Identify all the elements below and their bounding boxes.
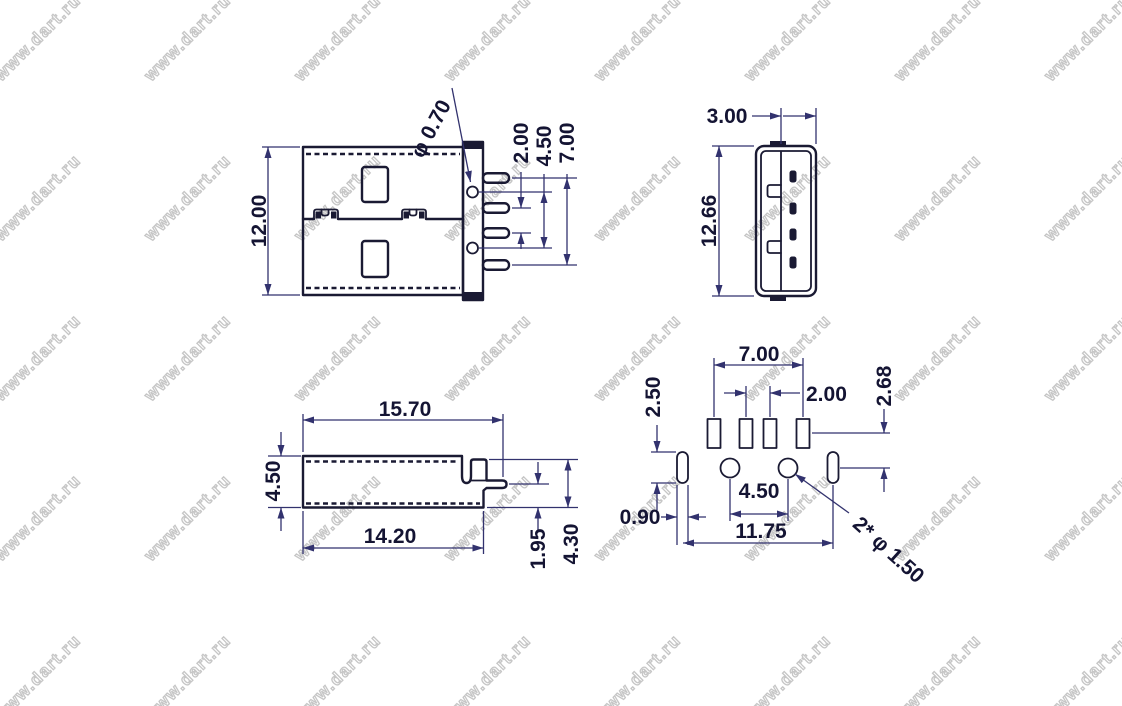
flange-hole-2: [467, 243, 478, 254]
smd-pad-2: [740, 419, 753, 448]
dimension-label-mount-height: 4.30: [560, 524, 583, 565]
connector-body-outline: [303, 147, 463, 295]
flange-cap-top: [464, 142, 482, 149]
smd-pad-4: [797, 419, 810, 448]
dimension-label-overall-length: 15.70: [379, 398, 432, 421]
contact-pin-3: [483, 228, 509, 238]
footprint-view-drawing: 7.00 2.00 2.68 2.50 4.50: [620, 343, 929, 588]
body-bottom-outline: [303, 456, 507, 508]
dimension-label-middle-pad-pitch: 2.00: [806, 383, 847, 406]
contact-mark-4: [790, 257, 797, 269]
dimension-label-hole-spacing: 4.50: [739, 480, 780, 503]
dimension-label-middle-pin-pitch: 2.00: [510, 123, 533, 164]
mount-slot-left: [677, 452, 688, 483]
shell-seam-tab-bottom: [770, 295, 786, 301]
locating-hole-2: [779, 459, 798, 478]
shell-outer-outline: [756, 146, 816, 296]
contact-mark-1: [790, 171, 797, 183]
locating-hole-1: [721, 459, 740, 478]
contact-pin-1: [483, 173, 509, 183]
shell-inner-outline: [761, 151, 811, 291]
dimension-label-body-length: 14.20: [364, 525, 417, 548]
side-view-drawing: 12.00 φ 0.70 2.00 4.50 7.00: [248, 88, 579, 300]
flange-hole-1: [467, 187, 478, 198]
tongue-tab: [768, 241, 782, 253]
contact-pin-4: [483, 260, 509, 270]
contact-pin-2: [483, 203, 509, 213]
dimension-label-mount-span: 11.75: [735, 520, 787, 543]
smd-pad-3: [764, 419, 777, 448]
shell-seam-tab-top: [770, 141, 786, 147]
latch-tab: [419, 212, 425, 219]
dimension-label-shell-depth: 3.00: [707, 105, 748, 128]
front-view-drawing: 3.00 12.66: [698, 105, 816, 301]
technical-drawing: 12.00 φ 0.70 2.00 4.50 7.00: [0, 0, 1122, 706]
dimension-label-hole-diameter: φ 0.70: [407, 96, 456, 161]
dimension-label-pin-span: 7.00: [556, 123, 579, 164]
dimension-label-slot-width: 0.90: [620, 506, 661, 529]
dimension-label-hole-note: 2* φ 1.50: [848, 512, 928, 588]
tongue-tab: [768, 185, 782, 197]
dimension-label-shell-height: 12.66: [698, 195, 721, 248]
dimension-label-hole-spacing: 4.50: [533, 126, 556, 167]
contact-mark-2: [790, 203, 797, 215]
smd-pad-1: [708, 419, 721, 448]
shell-window-lower: [362, 241, 388, 277]
mount-slot-right: [828, 452, 839, 483]
latch-tab: [331, 212, 337, 219]
dimension-label-row-offset: 2.68: [873, 365, 896, 406]
dimension-label-body-height: 4.50: [262, 461, 285, 502]
flange-cap-bottom: [464, 292, 482, 299]
dimension-label-pin-offset: 1.95: [527, 528, 550, 569]
latch-tab: [316, 212, 322, 219]
contact-mark-3: [790, 229, 797, 241]
shell-window-upper: [362, 167, 388, 202]
bottom-view-drawing: 15.70 4.50 14.20 1.95 4.30: [262, 398, 583, 569]
latch-tab: [404, 212, 410, 219]
dimension-label-pad-span: 7.00: [739, 343, 780, 366]
dimension-label-slot-length: 2.50: [642, 377, 665, 418]
rear-flange: [463, 142, 483, 300]
dimension-label-body-height: 12.00: [248, 195, 271, 248]
drawing-sheet: www.dart.ruwww.dart.ruwww.dart.ruwww.dar…: [0, 0, 1122, 706]
